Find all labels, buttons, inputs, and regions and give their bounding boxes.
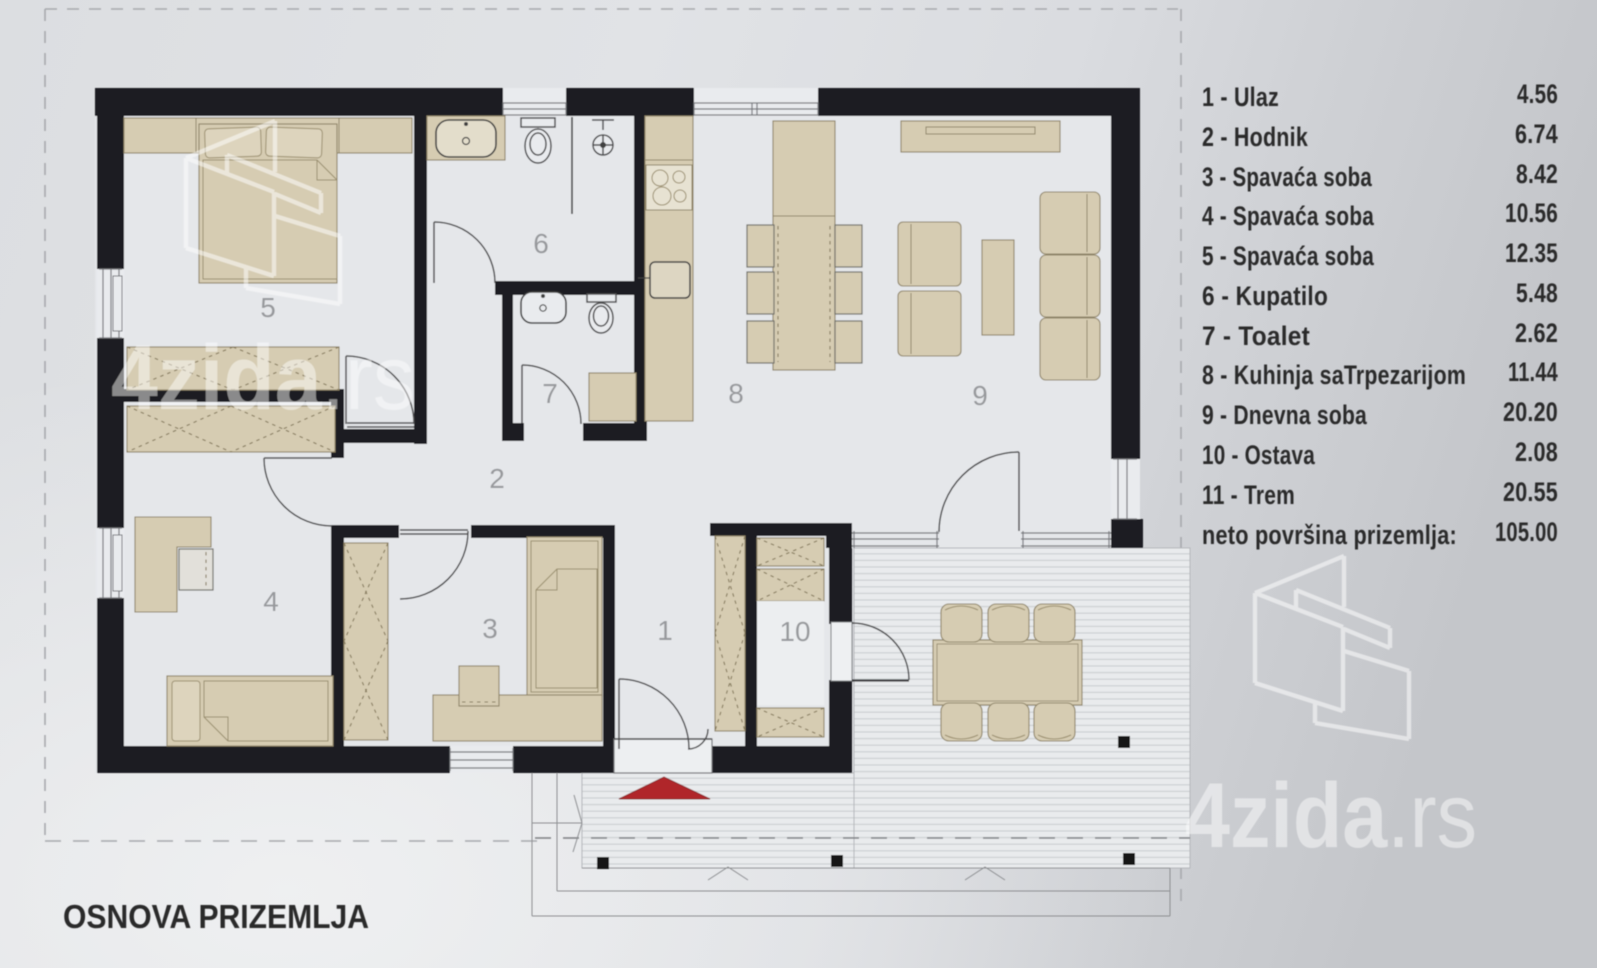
svg-text:6: 6 [533,228,549,259]
svg-text:4zida.rs: 4zida.rs [111,327,415,429]
svg-text:OSNOVA PRIZEMLJA: OSNOVA PRIZEMLJA [63,898,369,935]
svg-text:5: 5 [260,292,276,323]
svg-text:20.20: 20.20 [1503,397,1558,427]
svg-text:8 - Kuhinja saTrpezarijom: 8 - Kuhinja saTrpezarijom [1202,360,1466,390]
svg-text:10: 10 [779,616,810,647]
svg-text:105.00: 105.00 [1495,517,1558,547]
svg-text:12.35: 12.35 [1505,238,1558,268]
svg-text:4zida.rs: 4zida.rs [1185,765,1477,867]
svg-text:20.55: 20.55 [1503,477,1558,507]
svg-text:8: 8 [728,378,744,409]
svg-text:5 - Spavaća soba: 5 - Spavaća soba [1202,241,1375,271]
svg-text:6 - Kupatilo: 6 - Kupatilo [1202,281,1328,311]
svg-text:4 - Spavaća soba: 4 - Spavaća soba [1202,201,1375,231]
svg-text:5.48: 5.48 [1516,278,1558,308]
svg-text:1 - Ulaz: 1 - Ulaz [1202,82,1279,112]
svg-text:3: 3 [482,613,498,644]
svg-text:10 - Ostava: 10 - Ostava [1202,440,1316,470]
svg-text:4.56: 4.56 [1517,79,1558,109]
svg-text:7: 7 [542,378,558,409]
svg-text:3 - Spavaća soba: 3 - Spavaća soba [1202,162,1373,192]
svg-text:2 - Hodnik: 2 - Hodnik [1202,122,1309,152]
svg-text:6.74: 6.74 [1515,119,1558,149]
svg-text:8.42: 8.42 [1516,159,1558,189]
svg-text:10.56: 10.56 [1505,198,1558,228]
svg-text:9 - Dnevna soba: 9 - Dnevna soba [1202,400,1368,430]
svg-text:2.08: 2.08 [1515,437,1558,467]
svg-text:11.44: 11.44 [1508,357,1558,387]
svg-text:2.62: 2.62 [1515,318,1558,348]
svg-text:9: 9 [972,380,988,411]
svg-text:4: 4 [263,586,279,617]
svg-text:2: 2 [489,463,505,494]
svg-text:neto površina prizemlja:: neto površina prizemlja: [1202,520,1457,550]
svg-text:7 - Toalet: 7 - Toalet [1202,321,1310,351]
svg-text:1: 1 [657,615,673,646]
svg-text:11 - Trem: 11 - Trem [1202,480,1295,510]
